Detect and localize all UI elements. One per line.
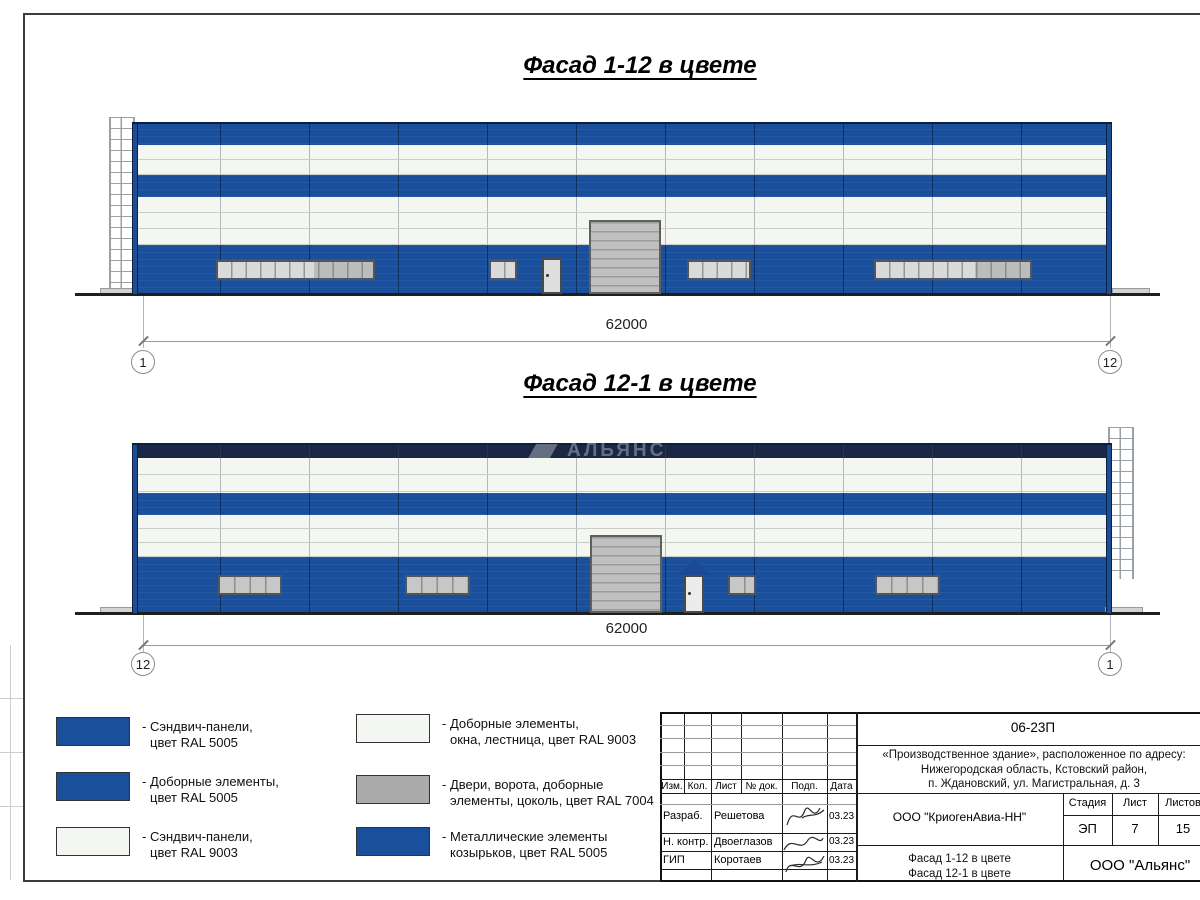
margin-line bbox=[10, 645, 11, 880]
col-podp: Подп. bbox=[782, 781, 827, 792]
subject-cell: Фасад 1-12 в цвете Фасад 12-1 в цвете bbox=[858, 852, 1061, 882]
sheet-label: Лист bbox=[1112, 797, 1158, 809]
panel-band-white bbox=[132, 145, 1112, 175]
legend-swatch-sandwich-9003 bbox=[56, 827, 130, 856]
facade-12-1-title: Фасад 12-1 в цвете bbox=[140, 370, 1140, 398]
window-strip bbox=[405, 575, 470, 595]
titleblock-line bbox=[660, 765, 856, 766]
window bbox=[728, 575, 756, 595]
legend-label: - Сэндвич-панели, цвет RAL 5005 bbox=[142, 719, 253, 751]
project-line: п. Ждановский, ул. Магистральная, д. 3 bbox=[860, 777, 1200, 792]
legend-line: - Двери, ворота, доборные bbox=[442, 777, 603, 792]
row-date: 03.23 bbox=[827, 811, 856, 822]
sheets-value: 15 bbox=[1158, 821, 1200, 836]
legend-line: - Сэндвич-панели, bbox=[142, 829, 253, 844]
panel-band-blue bbox=[132, 493, 1112, 515]
dimension-label: 62000 bbox=[143, 316, 1110, 333]
corner-trim-left bbox=[132, 443, 138, 613]
col-data: Дата bbox=[827, 781, 856, 792]
col-ndok: № док. bbox=[741, 781, 782, 792]
legend-label: - Доборные элементы, окна, лестница, цве… bbox=[442, 716, 636, 748]
legend-line: окна, лестница, цвет RAL 9003 bbox=[442, 732, 636, 747]
titleblock-line bbox=[660, 869, 856, 870]
legend-line: элементы, цоколь, цвет RAL 7004 bbox=[442, 793, 654, 808]
legend-line: - Доборные элементы, bbox=[142, 774, 279, 789]
axis-number: 1 bbox=[1106, 657, 1113, 672]
row-role: ГИП bbox=[663, 854, 685, 866]
legend-label: - Металлические элементы козырьков, цвет… bbox=[442, 829, 607, 861]
watermark: АЛЬЯНС bbox=[528, 440, 666, 462]
legend-swatch-canopy-5005 bbox=[356, 827, 430, 856]
project-line: Нижегородская область, Кстовский район, bbox=[860, 763, 1200, 778]
row-date: 03.23 bbox=[827, 836, 856, 847]
gate bbox=[590, 535, 662, 613]
window-strip bbox=[687, 260, 751, 280]
row-name: Двоеглазов bbox=[714, 836, 772, 848]
axis-marker-12: 12 bbox=[131, 652, 155, 676]
legend-label: - Доборные элементы, цвет RAL 5005 bbox=[142, 774, 279, 806]
dimension-line bbox=[143, 645, 1110, 646]
project-description: «Производственное здание», расположенное… bbox=[860, 748, 1200, 792]
col-izm: Изм. bbox=[660, 781, 684, 792]
axis-number: 12 bbox=[1103, 355, 1117, 370]
legend-line: цвет RAL 5005 bbox=[142, 790, 238, 805]
org-name: ООО "Альянс" bbox=[1065, 857, 1200, 874]
titleblock-line bbox=[660, 804, 856, 805]
legend-label: - Двери, ворота, доборные элементы, цоко… bbox=[442, 777, 654, 809]
subject-line: Фасад 1-12 в цвете bbox=[858, 852, 1061, 867]
margin-line bbox=[0, 698, 23, 699]
company-name: ООО "КриогенАвиа-НН" bbox=[858, 810, 1061, 824]
gate bbox=[589, 220, 661, 294]
sheets-label: Листов bbox=[1158, 797, 1200, 809]
row-name: Решетова bbox=[714, 810, 764, 822]
parapet-edge bbox=[132, 122, 1112, 124]
legend-swatch-sandwich-5005 bbox=[56, 717, 130, 746]
door-canopy bbox=[678, 559, 710, 575]
legend-label: - Сэндвич-панели, цвет RAL 9003 bbox=[142, 829, 253, 861]
titleblock-line bbox=[660, 833, 856, 834]
axis-number: 1 bbox=[139, 355, 146, 370]
axis-marker-1: 1 bbox=[1098, 652, 1122, 676]
facade-1-12-title: Фасад 1-12 в цвете bbox=[140, 52, 1140, 80]
titleblock-line bbox=[1063, 815, 1200, 816]
row-role: Разраб. bbox=[663, 810, 703, 822]
axis-number: 12 bbox=[136, 657, 150, 672]
window-strip bbox=[218, 575, 282, 595]
panel-band-blue bbox=[132, 175, 1112, 197]
panel-band-white bbox=[132, 458, 1112, 493]
project-line: «Производственное здание», расположенное… bbox=[860, 748, 1200, 763]
titleblock-line bbox=[660, 851, 856, 852]
titleblock-line bbox=[856, 745, 1200, 746]
sheet-value: 7 bbox=[1112, 821, 1158, 836]
dimension-line bbox=[143, 341, 1110, 342]
legend-swatch-trim-9003 bbox=[356, 714, 430, 743]
margin-line bbox=[0, 752, 23, 753]
legend-line: - Доборные элементы, bbox=[442, 716, 579, 731]
corner-trim-right bbox=[1106, 443, 1112, 613]
col-kol: Кол. bbox=[684, 781, 711, 792]
titleblock-line bbox=[660, 738, 856, 739]
signature bbox=[780, 832, 826, 880]
window-strip bbox=[874, 260, 1032, 280]
legend-swatch-doors-7004 bbox=[356, 775, 430, 804]
col-list: Лист bbox=[711, 781, 741, 792]
stage-value: ЭП bbox=[1063, 821, 1112, 836]
facade-1-12-drawing bbox=[132, 122, 1112, 294]
window-strip bbox=[875, 575, 940, 595]
signature bbox=[784, 799, 826, 831]
dimension-label: 62000 bbox=[143, 620, 1110, 637]
row-date: 03.23 bbox=[827, 855, 856, 866]
watermark-text: АЛЬЯНС bbox=[567, 440, 666, 462]
row-name: Коротаев bbox=[714, 854, 762, 866]
titleblock-line bbox=[660, 793, 856, 794]
titleblock-line bbox=[660, 752, 856, 753]
window bbox=[489, 260, 517, 280]
legend-line: цвет RAL 5005 bbox=[142, 735, 238, 750]
facade-12-1-drawing bbox=[132, 443, 1112, 613]
frame-top bbox=[23, 13, 1200, 15]
row-role: Н. контр. bbox=[663, 836, 708, 848]
legend-line: - Металлические элементы bbox=[442, 829, 607, 844]
subject-line: Фасад 12-1 в цвете bbox=[858, 867, 1061, 882]
entrance-door bbox=[684, 575, 704, 613]
watermark-logo-icon bbox=[528, 444, 558, 459]
panel-band-blue bbox=[132, 122, 1112, 145]
titleblock-line bbox=[856, 845, 1200, 846]
stage-label: Стадия bbox=[1063, 797, 1112, 809]
doc-number: 06-23П bbox=[858, 720, 1200, 735]
titleblock-line bbox=[856, 793, 1200, 794]
titleblock-line bbox=[660, 725, 856, 726]
margin-line bbox=[0, 806, 23, 807]
legend-line: козырьков, цвет RAL 5005 bbox=[442, 845, 607, 860]
legend-line: - Сэндвич-панели, bbox=[142, 719, 253, 734]
entrance-door bbox=[542, 258, 562, 294]
frame-left bbox=[23, 13, 25, 882]
window-strip bbox=[216, 260, 375, 280]
corner-trim-left bbox=[132, 122, 138, 294]
drawing-sheet: Фасад 1-12 в цвете 62000 1 12 Фасад 12-1… bbox=[0, 0, 1200, 900]
titleblock-line bbox=[660, 779, 856, 780]
corner-trim-right bbox=[1106, 122, 1112, 294]
legend-line: цвет RAL 9003 bbox=[142, 845, 238, 860]
legend-swatch-trim-5005 bbox=[56, 772, 130, 801]
